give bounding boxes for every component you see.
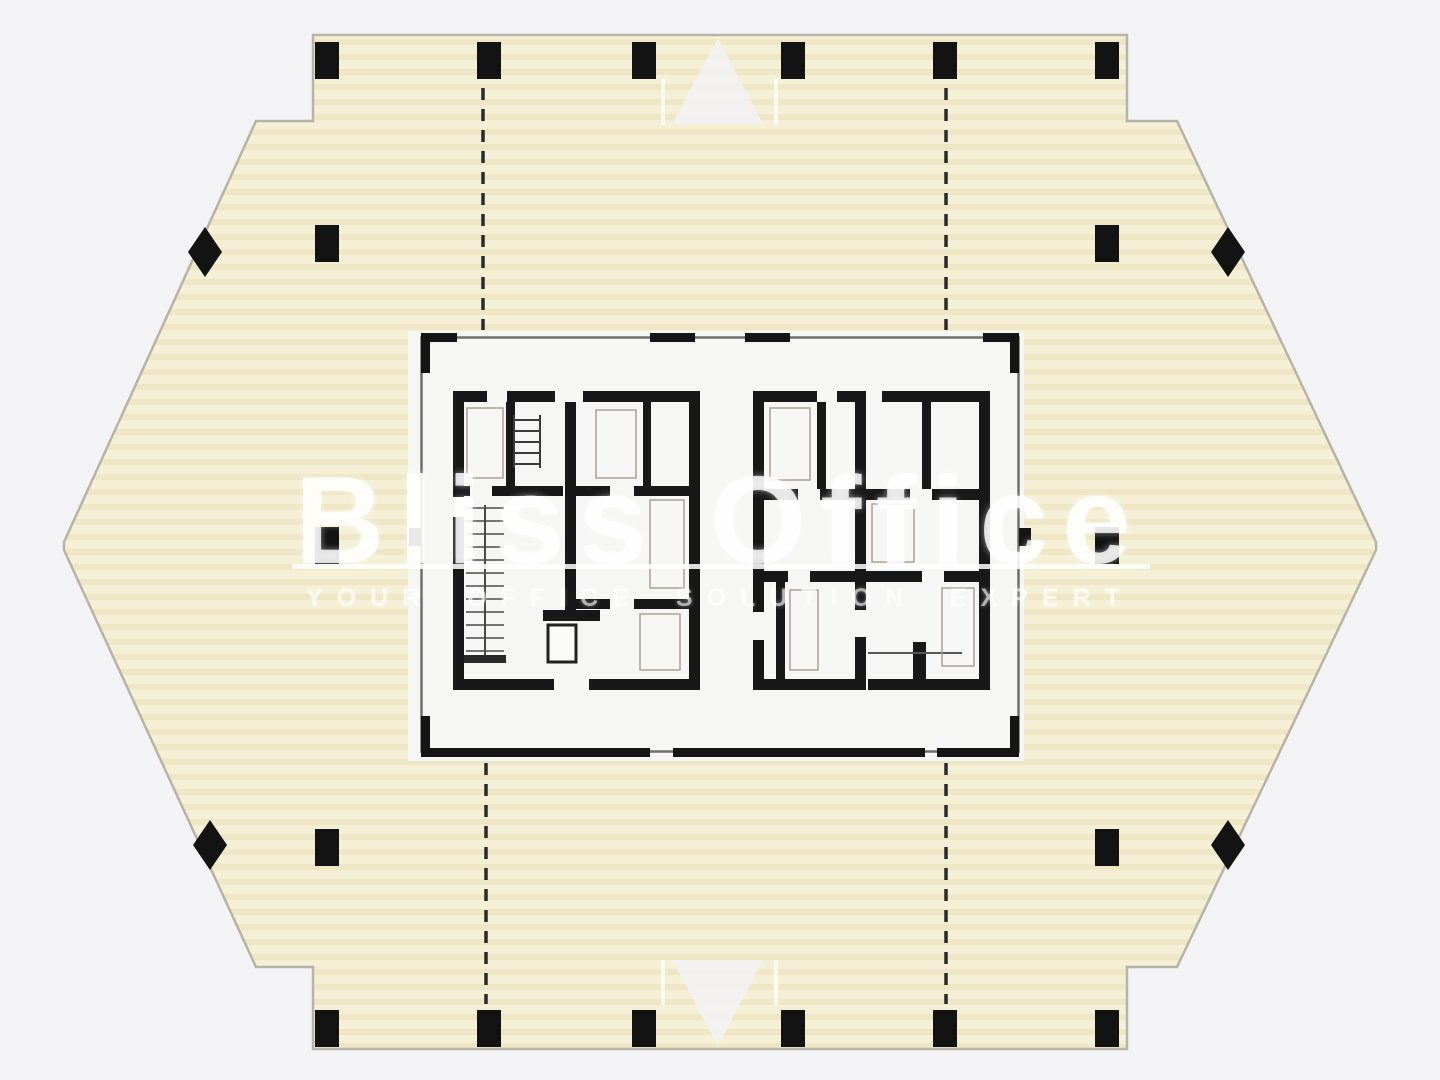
wall-segment: [866, 571, 922, 582]
wall-segment: [866, 489, 910, 500]
frame-tick: [745, 333, 790, 342]
wall-segment: [979, 391, 990, 690]
column-marker: [1095, 1010, 1119, 1047]
top-notch-strip-right: [774, 78, 778, 125]
wall-segment: [634, 599, 689, 609]
wall-segment: [453, 679, 554, 690]
wall-segment: [634, 486, 689, 496]
column-marker: [933, 42, 957, 79]
column-marker: [632, 1010, 656, 1047]
column-marker: [477, 42, 501, 79]
frame-side-tick: [409, 528, 421, 546]
wall-segment: [576, 486, 610, 496]
column-marker: [315, 527, 339, 564]
wall-segment: [753, 679, 856, 690]
column-marker: [315, 225, 339, 262]
wall-segment: [913, 642, 926, 679]
wall-segment: [810, 571, 855, 582]
bottom-notch-strip-left: [661, 960, 665, 1005]
wall-segment: [492, 486, 563, 496]
wall-segment: [855, 637, 866, 690]
column-marker: [315, 42, 339, 79]
frame-side-tick: [1019, 528, 1031, 546]
core: [408, 331, 1031, 761]
wall-segment: [453, 517, 464, 690]
frame-bottom-edge: [937, 748, 1019, 757]
column-marker: [781, 42, 805, 79]
wall-segment: [753, 489, 798, 500]
wall-segment: [583, 391, 700, 402]
column-marker: [1095, 225, 1119, 262]
column-marker: [632, 42, 656, 79]
bottom-notch-strip-right: [774, 960, 778, 1005]
column-marker: [781, 1010, 805, 1047]
frame-bottom-edge: [673, 748, 925, 757]
column-marker: [1095, 829, 1119, 866]
wall-segment: [576, 599, 610, 609]
column-marker: [315, 829, 339, 866]
wall-segment: [753, 571, 788, 582]
frame-corner-bracket: [1010, 337, 1019, 373]
wall-segment: [643, 402, 651, 486]
wall-segment: [882, 391, 990, 402]
wall-segment: [820, 489, 855, 500]
wall-segment: [944, 571, 990, 582]
floor-plan-canvas: [0, 0, 1440, 1080]
wall-segment: [922, 402, 931, 489]
frame-bottom-edge: [421, 748, 650, 757]
lobby-fixture-box: [548, 625, 576, 662]
floor-plan-page: Bliss Office YOUR OFFICE SOLUTION EXPERT: [0, 0, 1440, 1080]
wall-segment: [817, 402, 826, 489]
frame-corner-bracket: [421, 716, 430, 752]
column-marker: [1095, 42, 1119, 79]
wall-segment: [932, 489, 990, 500]
lobby-fixture-bar: [543, 610, 600, 621]
wall-segment: [565, 402, 576, 615]
wall-segment: [776, 582, 785, 679]
column-marker: [933, 1010, 957, 1047]
wall-segment: [689, 391, 700, 690]
wall-segment: [855, 391, 866, 610]
wall-segment: [589, 679, 700, 690]
frame-corner-bracket: [1010, 716, 1019, 752]
column-marker: [477, 1010, 501, 1047]
column-marker: [315, 1010, 339, 1047]
frame-tick: [650, 333, 695, 342]
frame-corner-bracket: [421, 337, 430, 373]
column-marker: [1095, 527, 1119, 564]
wall-segment: [868, 679, 990, 690]
wall-segment: [507, 391, 555, 402]
wall-segment: [453, 486, 470, 496]
wall-segment: [453, 391, 464, 497]
stair-landing: [464, 655, 506, 663]
top-notch-strip-left: [661, 78, 665, 125]
